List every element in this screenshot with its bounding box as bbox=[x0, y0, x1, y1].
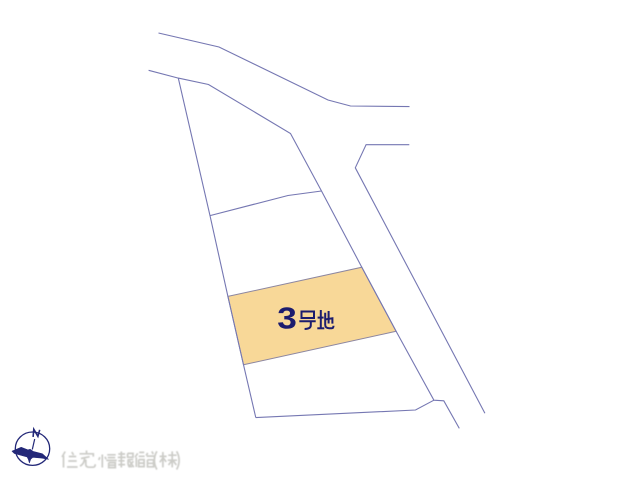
svg-text:3: 3 bbox=[277, 301, 297, 336]
